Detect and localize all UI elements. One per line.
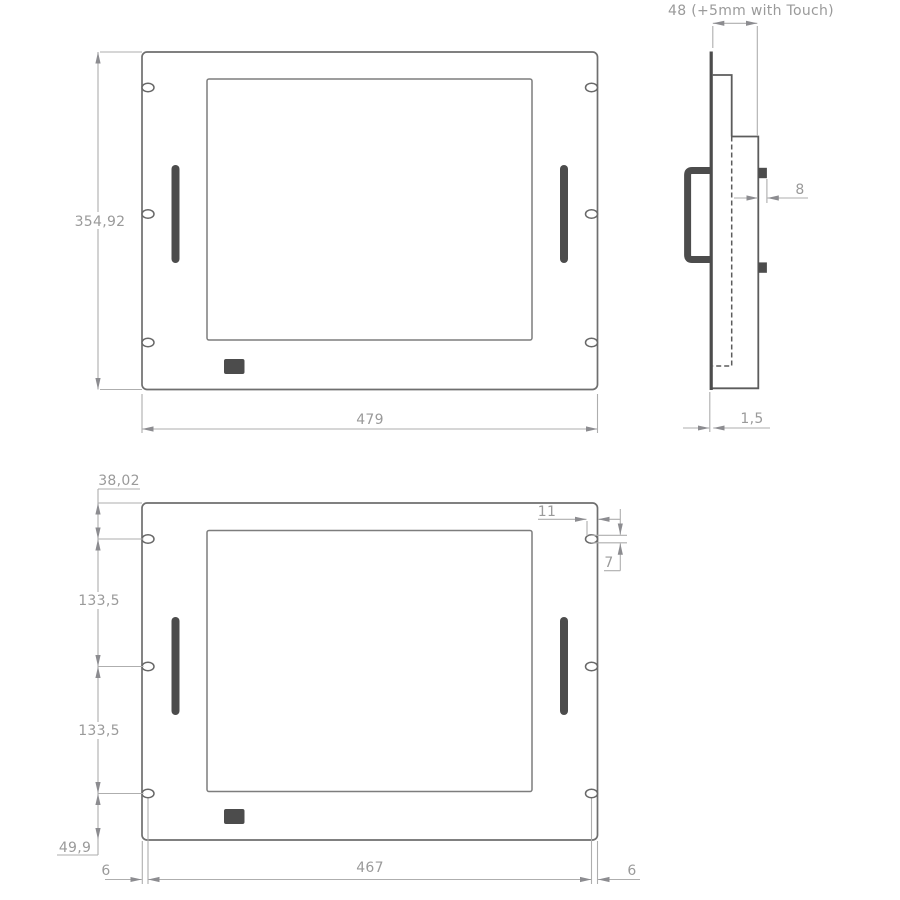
dim-label-panel-thickness: 1,5	[740, 411, 763, 427]
mounting-hole	[586, 210, 598, 218]
mounting-hole	[142, 338, 154, 346]
dim-overall-width: 479	[142, 394, 598, 433]
mounting-hole	[586, 535, 598, 543]
dim-panel-thickness: 1,5	[683, 392, 770, 432]
handle-slot-left	[172, 617, 180, 715]
mounting-hole	[586, 662, 598, 670]
dim-stud-length: 8	[734, 179, 808, 203]
handle-slot-right	[560, 617, 568, 715]
side-view: 48 (+5mm with Touch) 8 1,5	[668, 3, 834, 432]
screen-outline	[207, 531, 532, 792]
dim-label-hole-to-bottom: 49,9	[59, 840, 91, 856]
screen-outline	[207, 79, 532, 340]
chassis-rear-box	[712, 137, 759, 389]
mounting-hole	[142, 789, 154, 797]
technical-drawing: 354,92 479 48 (+5mm with Touch)	[0, 0, 900, 900]
dim-label-depth: 48 (+5mm with Touch)	[668, 3, 834, 19]
dim-label-edge-to-hole-left: 6	[101, 863, 110, 879]
handle-slot-left	[172, 165, 180, 263]
hidden-edge-dashed	[713, 137, 732, 367]
dim-overall-height: 354,92	[75, 52, 142, 390]
mounting-hole	[586, 789, 598, 797]
dim-label-hole-pitch-lower: 133,5	[78, 723, 120, 739]
mounting-hole	[142, 535, 154, 543]
dim-label-overall-height: 354,92	[75, 214, 126, 230]
drawing-canvas: 354,92 479 48 (+5mm with Touch)	[0, 0, 900, 900]
mounting-hole	[142, 210, 154, 218]
front-view-bottom: 38,02 133,5 133,5 49,9	[57, 473, 640, 884]
power-button	[224, 809, 245, 824]
rear-stud	[758, 262, 767, 272]
handle-slot-right	[560, 165, 568, 263]
dim-label-stud-length: 8	[795, 182, 804, 198]
mounting-hole	[142, 662, 154, 670]
mounting-hole	[142, 83, 154, 91]
dim-label-slot-width: 11	[538, 504, 556, 520]
dim-label-edge-to-hole-right: 6	[627, 863, 636, 879]
chassis-upper-step	[713, 75, 732, 137]
mounting-hole	[586, 338, 598, 346]
dim-label-hole-span: 467	[356, 860, 384, 876]
dim-hole-chain-vertical: 38,02 133,5 133,5 49,9	[57, 473, 144, 856]
dim-label-hole-pitch-upper: 133,5	[78, 593, 120, 609]
front-view-top: 354,92 479	[75, 52, 598, 433]
dim-label-top-to-hole: 38,02	[98, 473, 140, 489]
front-panel-plate	[710, 52, 713, 391]
power-button	[224, 359, 245, 374]
rear-stud	[758, 168, 767, 178]
dim-depth: 48 (+5mm with Touch)	[668, 3, 834, 136]
carry-handle	[688, 171, 710, 260]
dim-label-slot-height: 7	[604, 555, 613, 571]
mounting-hole	[586, 83, 598, 91]
dim-label-overall-width: 479	[356, 412, 384, 428]
